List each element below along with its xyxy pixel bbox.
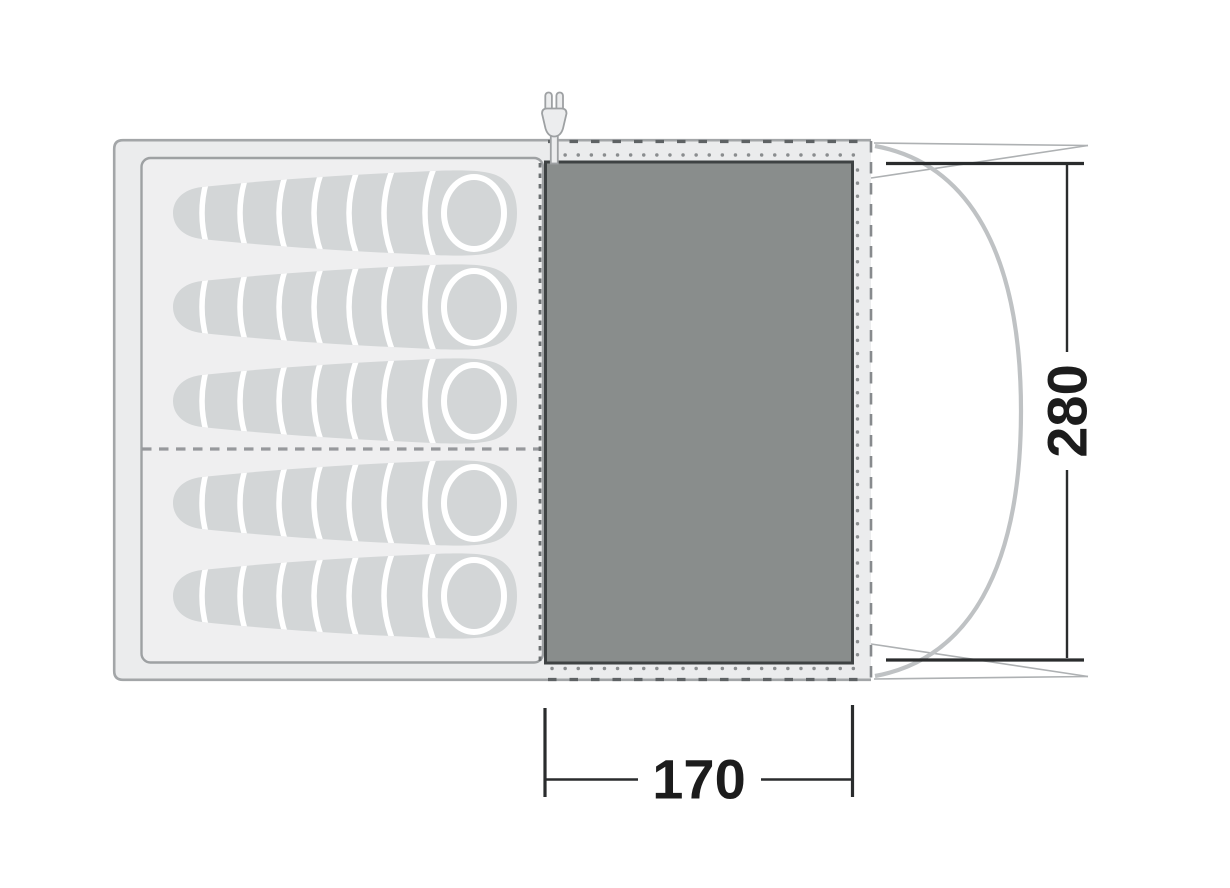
living-room-floor — [546, 162, 853, 663]
dimension-vertical: 280 — [886, 164, 1099, 661]
plug-body — [542, 109, 567, 137]
tent-floorplan-diagram: 280 170 — [0, 0, 1230, 888]
dimension-label-vertical: 280 — [1036, 364, 1099, 457]
floorplan-canvas: 280 170 — [0, 0, 1230, 888]
dimension-label-horizontal: 170 — [652, 748, 745, 811]
pole-arc — [875, 146, 1021, 676]
plug-cable — [551, 135, 558, 164]
dimension-horizontal: 170 — [545, 705, 853, 811]
sleeping-bags — [173, 168, 517, 641]
